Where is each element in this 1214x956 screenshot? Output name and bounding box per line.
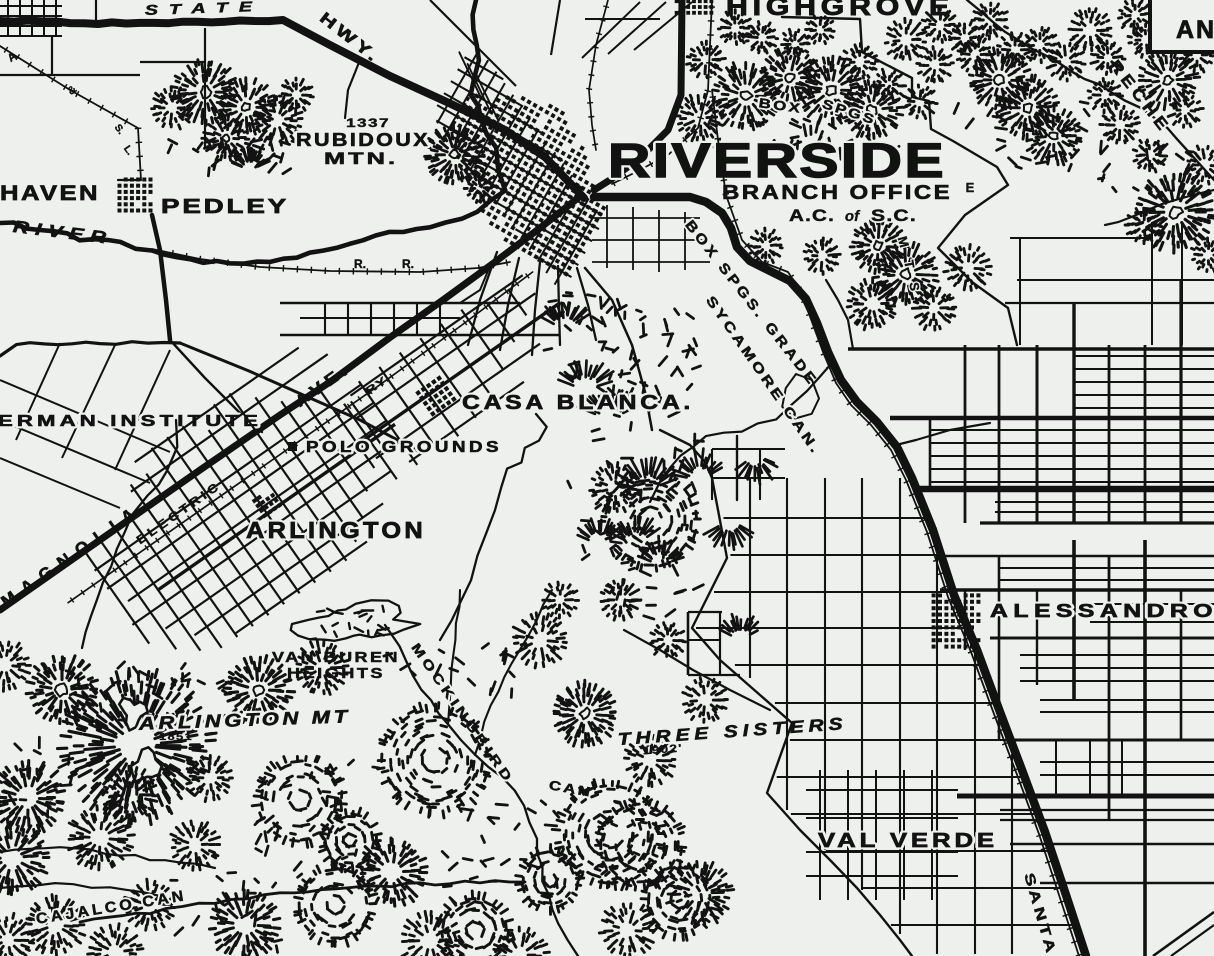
svg-text:HAVEN: HAVEN [0, 182, 100, 205]
svg-text:RIVERSIDE: RIVERSIDE [608, 135, 946, 188]
svg-text:E: E [966, 180, 975, 195]
svg-text:S.C.: S.C. [871, 206, 917, 225]
svg-text:of: of [845, 208, 861, 225]
svg-text:ALESSANDRO: ALESSANDRO [990, 601, 1214, 621]
svg-text:VAL VERDE: VAL VERDE [818, 830, 998, 852]
svg-text:R.: R. [354, 257, 366, 271]
svg-text:AN: AN [1176, 16, 1214, 44]
svg-text:1851: 1851 [159, 731, 193, 743]
svg-text:ARLINGTON: ARLINGTON [246, 517, 426, 543]
svg-text:A.C.: A.C. [789, 206, 835, 225]
svg-text:S: S [907, 282, 923, 292]
svg-text:POLO GROUNDS: POLO GROUNDS [306, 439, 502, 456]
svg-text:MTN.: MTN. [324, 149, 398, 168]
svg-text:BRANCH OFFICE: BRANCH OFFICE [722, 182, 952, 204]
svg-text:R.: R. [402, 257, 414, 271]
svg-text:RUBIDOUX: RUBIDOUX [296, 130, 430, 150]
svg-text:1337: 1337 [346, 116, 390, 130]
svg-text:PEDLEY: PEDLEY [161, 196, 289, 218]
svg-text:CASA BLANCA.: CASA BLANCA. [462, 392, 694, 414]
